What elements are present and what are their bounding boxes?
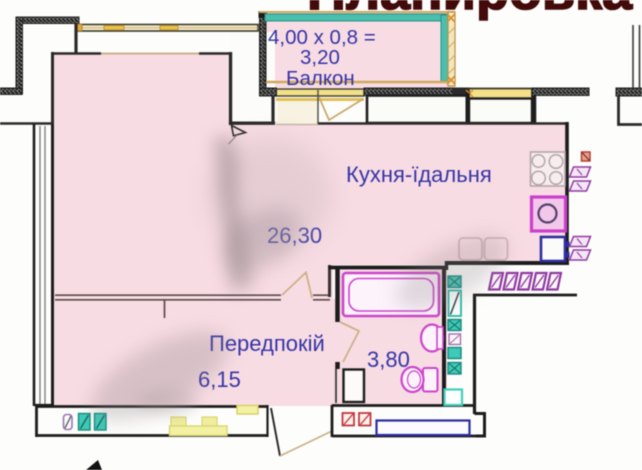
svg-text:Балкон: Балкон (286, 67, 355, 90)
svg-text:Кухня-їдальня: Кухня-їдальня (346, 162, 492, 187)
svg-text:3,80: 3,80 (367, 347, 410, 372)
svg-text:Планировка: Планировка (307, 0, 633, 21)
svg-text:3,20: 3,20 (300, 46, 340, 69)
